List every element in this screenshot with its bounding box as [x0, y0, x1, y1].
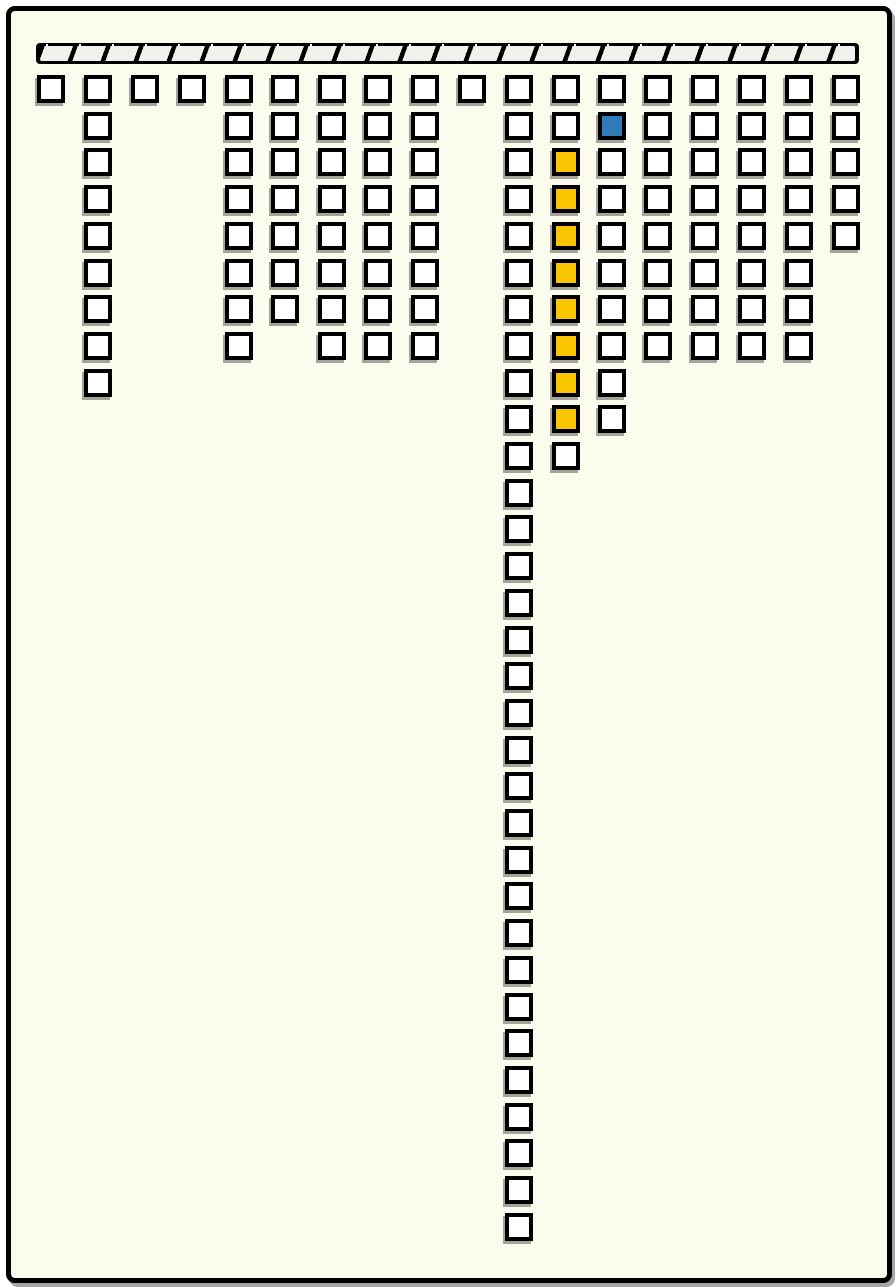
board-page — [0, 0, 896, 1287]
grid-cell-c8-r3[interactable] — [364, 148, 392, 176]
grid-cell-c7-r5[interactable] — [318, 222, 346, 250]
grid-cell-c5-r2[interactable] — [225, 112, 253, 140]
grid-cell-c11-r14[interactable] — [505, 552, 533, 580]
grid-cell-c16-r7[interactable] — [738, 295, 766, 323]
grid-cell-c16-r2[interactable] — [738, 112, 766, 140]
grid-cell-c11-r32[interactable] — [505, 1213, 533, 1241]
grid-cell-c15-r2[interactable] — [691, 112, 719, 140]
grid-cell-c17-r4[interactable] — [785, 185, 813, 213]
grid-cell-c11-r31[interactable] — [505, 1176, 533, 1204]
grid-cell-c2-r7[interactable] — [84, 295, 112, 323]
grid-cell-c7-r6[interactable] — [318, 259, 346, 287]
grid-cell-c16-r1[interactable] — [738, 75, 766, 103]
grid-cell-c15-r6[interactable] — [691, 259, 719, 287]
grid-cell-c14-r4[interactable] — [644, 185, 672, 213]
grid-cell-c14-r3[interactable] — [644, 148, 672, 176]
grid-cell-c11-r15[interactable] — [505, 589, 533, 617]
grid-cell-c9-r1[interactable] — [411, 75, 439, 103]
grid-cell-c12-r6[interactable] — [552, 259, 580, 287]
grid-cell-c11-r25[interactable] — [505, 956, 533, 984]
grid-cell-c11-r19[interactable] — [505, 736, 533, 764]
grid-cell-c5-r6[interactable] — [225, 259, 253, 287]
grid-cell-c8-r8[interactable] — [364, 332, 392, 360]
grid-cell-c11-r11[interactable] — [505, 442, 533, 470]
grid-cell-c15-r8[interactable] — [691, 332, 719, 360]
grid-cell-c15-r7[interactable] — [691, 295, 719, 323]
grid-cell-c9-r3[interactable] — [411, 148, 439, 176]
grid-cell-c14-r6[interactable] — [644, 259, 672, 287]
grid-cell-c15-r4[interactable] — [691, 185, 719, 213]
grid-cell-c13-r9[interactable] — [598, 369, 626, 397]
grid-cell-c6-r7[interactable] — [271, 295, 299, 323]
grid-cell-c12-r8[interactable] — [552, 332, 580, 360]
grid-cell-c12-r11[interactable] — [552, 442, 580, 470]
grid-cell-c11-r4[interactable] — [505, 185, 533, 213]
grid-cell-c13-r10[interactable] — [598, 405, 626, 433]
grid-cell-c6-r3[interactable] — [271, 148, 299, 176]
grid-cell-c11-r18[interactable] — [505, 699, 533, 727]
grid-cell-c17-r7[interactable] — [785, 295, 813, 323]
grid-cell-c11-r2[interactable] — [505, 112, 533, 140]
grid-cell-c2-r3[interactable] — [84, 148, 112, 176]
grid-cell-c12-r4[interactable] — [552, 185, 580, 213]
grid-cell-c11-r24[interactable] — [505, 919, 533, 947]
grid-cell-c17-r5[interactable] — [785, 222, 813, 250]
grid-cell-c11-r20[interactable] — [505, 772, 533, 800]
grid-cell-c11-r7[interactable] — [505, 295, 533, 323]
grid-cell-c11-r8[interactable] — [505, 332, 533, 360]
grid-cell-c13-r3[interactable] — [598, 148, 626, 176]
grid-cell-c14-r1[interactable] — [644, 75, 672, 103]
grid-cell-c12-r10[interactable] — [552, 405, 580, 433]
hatch-dots — [46, 44, 849, 46]
grid-cell-c17-r2[interactable] — [785, 112, 813, 140]
grid-cell-c14-r8[interactable] — [644, 332, 672, 360]
grid-cell-c9-r8[interactable] — [411, 332, 439, 360]
grid-cell-c15-r3[interactable] — [691, 148, 719, 176]
grid-cell-c2-r9[interactable] — [84, 369, 112, 397]
grid-cell-c7-r8[interactable] — [318, 332, 346, 360]
grid-cell-c7-r3[interactable] — [318, 148, 346, 176]
grid-cell-c5-r5[interactable] — [225, 222, 253, 250]
grid-cell-c11-r6[interactable] — [505, 259, 533, 287]
grid-cell-c18-r4[interactable] — [832, 185, 860, 213]
grid-cell-c11-r26[interactable] — [505, 993, 533, 1021]
grid-cell-c11-r30[interactable] — [505, 1139, 533, 1167]
grid-cell-c15-r5[interactable] — [691, 222, 719, 250]
grid-cell-c9-r5[interactable] — [411, 222, 439, 250]
grid-cell-c11-r5[interactable] — [505, 222, 533, 250]
grid-cell-c12-r7[interactable] — [552, 295, 580, 323]
grid-cell-c5-r7[interactable] — [225, 295, 253, 323]
grid-cell-c14-r2[interactable] — [644, 112, 672, 140]
grid-cell-c13-r4[interactable] — [598, 185, 626, 213]
grid-cell-c13-r2[interactable] — [598, 112, 626, 140]
grid-cell-c5-r8[interactable] — [225, 332, 253, 360]
grid-cell-c4-r1[interactable] — [178, 75, 206, 103]
grid-cell-c16-r4[interactable] — [738, 185, 766, 213]
grid-cell-c8-r5[interactable] — [364, 222, 392, 250]
grid-cell-c6-r2[interactable] — [271, 112, 299, 140]
grid-cell-c12-r5[interactable] — [552, 222, 580, 250]
grid-cell-c5-r1[interactable] — [225, 75, 253, 103]
grid-cell-c11-r9[interactable] — [505, 369, 533, 397]
grid-cell-c7-r4[interactable] — [318, 185, 346, 213]
grid-cell-c6-r4[interactable] — [271, 185, 299, 213]
grid-cell-c14-r7[interactable] — [644, 295, 672, 323]
grid-cell-c11-r1[interactable] — [505, 75, 533, 103]
grid-cell-c18-r2[interactable] — [832, 112, 860, 140]
grid-cell-c11-r13[interactable] — [505, 515, 533, 543]
grid-cell-c12-r9[interactable] — [552, 369, 580, 397]
grid-cell-c7-r1[interactable] — [318, 75, 346, 103]
grid-cell-c11-r22[interactable] — [505, 846, 533, 874]
grid-cell-c5-r3[interactable] — [225, 148, 253, 176]
grid-cell-c7-r7[interactable] — [318, 295, 346, 323]
grid-cell-c13-r7[interactable] — [598, 295, 626, 323]
grid-cell-c13-r1[interactable] — [598, 75, 626, 103]
grid-cell-c11-r10[interactable] — [505, 405, 533, 433]
grid-cell-c15-r1[interactable] — [691, 75, 719, 103]
grid-cell-c9-r4[interactable] — [411, 185, 439, 213]
grid-cell-c2-r5[interactable] — [84, 222, 112, 250]
grid-cell-c3-r1[interactable] — [131, 75, 159, 103]
hatched-top-bar — [36, 43, 859, 64]
grid-cell-c8-r1[interactable] — [364, 75, 392, 103]
grid-cell-c1-r1[interactable] — [37, 75, 65, 103]
grid-cell-c17-r8[interactable] — [785, 332, 813, 360]
grid-cell-c8-r6[interactable] — [364, 259, 392, 287]
grid-cell-c13-r5[interactable] — [598, 222, 626, 250]
grid-cell-c13-r8[interactable] — [598, 332, 626, 360]
grid-cell-c14-r5[interactable] — [644, 222, 672, 250]
grid-cell-c16-r6[interactable] — [738, 259, 766, 287]
grid-cell-c7-r2[interactable] — [318, 112, 346, 140]
grid-cell-c17-r6[interactable] — [785, 259, 813, 287]
grid-cell-c9-r2[interactable] — [411, 112, 439, 140]
grid-cell-c11-r17[interactable] — [505, 662, 533, 690]
grid-cell-c11-r12[interactable] — [505, 479, 533, 507]
grid-cell-c2-r2[interactable] — [84, 112, 112, 140]
grid-cell-c16-r3[interactable] — [738, 148, 766, 176]
grid-cell-c2-r4[interactable] — [84, 185, 112, 213]
grid-cell-c11-r23[interactable] — [505, 882, 533, 910]
grid-cell-c11-r21[interactable] — [505, 809, 533, 837]
grid-cell-c8-r4[interactable] — [364, 185, 392, 213]
grid-cell-c9-r7[interactable] — [411, 295, 439, 323]
grid-cell-c6-r1[interactable] — [271, 75, 299, 103]
grid-cell-c12-r2[interactable] — [552, 112, 580, 140]
grid-cell-c18-r3[interactable] — [832, 148, 860, 176]
grid-cell-c11-r29[interactable] — [505, 1103, 533, 1131]
grid-cell-c2-r1[interactable] — [84, 75, 112, 103]
grid-cell-c2-r6[interactable] — [84, 259, 112, 287]
grid-cell-c16-r8[interactable] — [738, 332, 766, 360]
grid-cell-c11-r3[interactable] — [505, 148, 533, 176]
grid-cell-c9-r6[interactable] — [411, 259, 439, 287]
grid-cell-c8-r2[interactable] — [364, 112, 392, 140]
grid-cell-c17-r3[interactable] — [785, 148, 813, 176]
grid-cell-c8-r7[interactable] — [364, 295, 392, 323]
grid-cell-c16-r5[interactable] — [738, 222, 766, 250]
grid-cell-c18-r5[interactable] — [832, 222, 860, 250]
grid-cell-c17-r1[interactable] — [785, 75, 813, 103]
grid-cell-c6-r6[interactable] — [271, 259, 299, 287]
grid-cell-c2-r8[interactable] — [84, 332, 112, 360]
grid-cell-c5-r4[interactable] — [225, 185, 253, 213]
grid-cell-c11-r27[interactable] — [505, 1029, 533, 1057]
grid-cell-c18-r1[interactable] — [832, 75, 860, 103]
grid-cell-c11-r28[interactable] — [505, 1066, 533, 1094]
grid-cell-c13-r6[interactable] — [598, 259, 626, 287]
grid-cell-c10-r1[interactable] — [458, 75, 486, 103]
grid-cell-c12-r3[interactable] — [552, 148, 580, 176]
hatch-stripes — [40, 46, 855, 61]
grid-cell-c6-r5[interactable] — [271, 222, 299, 250]
grid-cell-c11-r16[interactable] — [505, 626, 533, 654]
grid-cell-c12-r1[interactable] — [552, 75, 580, 103]
